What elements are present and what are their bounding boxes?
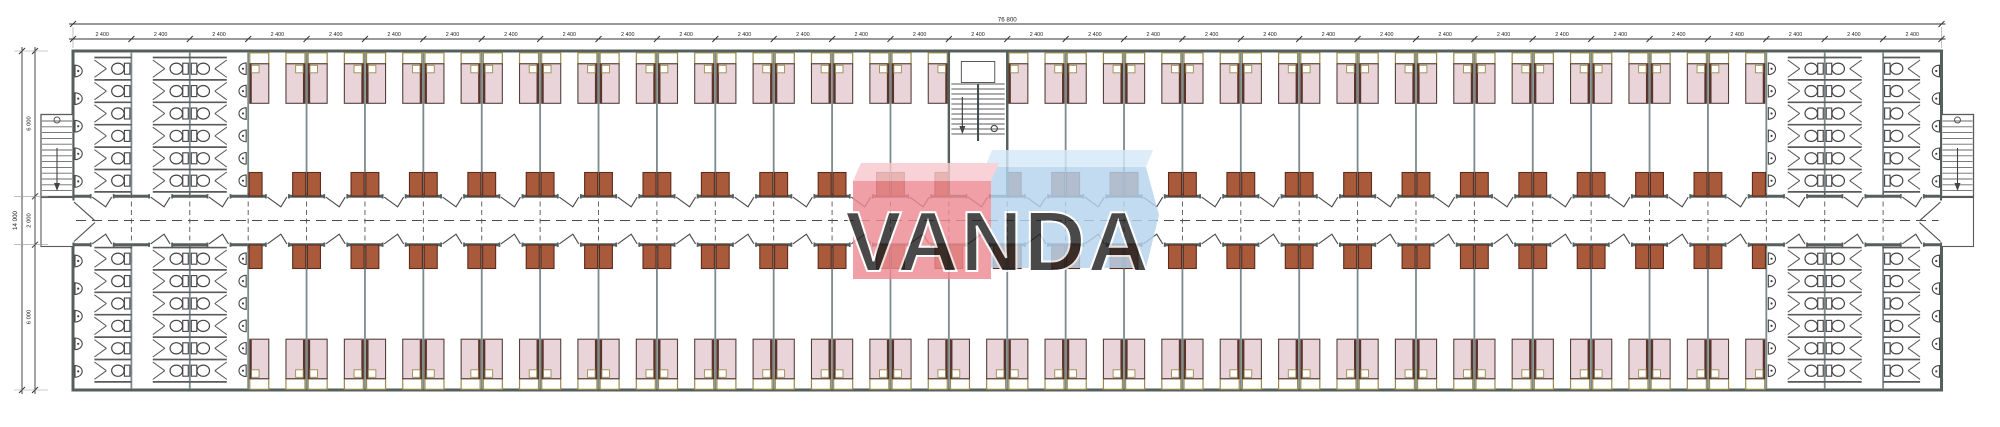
stall-door-swing bbox=[215, 136, 227, 145]
bed-pillow bbox=[310, 65, 318, 73]
door-opening bbox=[1726, 243, 1748, 247]
bed-pillow bbox=[821, 370, 829, 378]
bed-pillow bbox=[471, 65, 479, 73]
sink-drain bbox=[242, 347, 244, 349]
bed-pillow bbox=[1580, 370, 1588, 378]
stall-door-swing bbox=[153, 250, 165, 259]
bed-head bbox=[1009, 379, 1028, 390]
bed-pillow bbox=[1697, 65, 1705, 73]
door-jamb bbox=[1550, 194, 1552, 198]
stall-door-swing bbox=[1908, 60, 1920, 69]
door-swing bbox=[92, 234, 112, 244]
locker bbox=[1709, 245, 1722, 269]
toilet-tank bbox=[1818, 365, 1824, 376]
sink-drain bbox=[77, 260, 79, 262]
sink-drain bbox=[1770, 68, 1772, 70]
locker bbox=[293, 245, 306, 269]
stall-door-swing bbox=[153, 259, 165, 268]
toilet-bowl bbox=[1890, 365, 1902, 376]
locker bbox=[1183, 173, 1196, 197]
toilet-tank bbox=[1885, 153, 1891, 164]
bed-pillow bbox=[1419, 65, 1427, 73]
dimension-segment-label: 6 000 bbox=[27, 310, 33, 325]
sink-drain bbox=[77, 70, 79, 72]
stall-door-swing bbox=[153, 127, 165, 136]
door-opening bbox=[558, 243, 580, 247]
door-jamb bbox=[1164, 243, 1166, 247]
toilet-tank bbox=[1885, 365, 1891, 376]
door-swing bbox=[734, 234, 754, 244]
toilet-bowl bbox=[197, 253, 209, 264]
door-swing bbox=[1610, 197, 1630, 207]
door-leaf bbox=[74, 202, 95, 221]
door-jamb bbox=[1666, 243, 1668, 247]
dimension-module-label: 2 400 bbox=[796, 32, 810, 38]
dimension-module-label: 2 400 bbox=[387, 32, 401, 38]
stall-door-swing bbox=[1850, 181, 1862, 190]
door-jamb bbox=[1725, 243, 1727, 247]
stall-door-swing bbox=[1908, 317, 1920, 326]
door-jamb bbox=[405, 243, 407, 247]
toilet-tank bbox=[191, 108, 197, 119]
toilet-bowl bbox=[1805, 153, 1817, 164]
locker bbox=[1358, 173, 1371, 197]
bed-head bbox=[425, 379, 444, 390]
stall-door-swing bbox=[94, 326, 106, 335]
stall-door-swing bbox=[215, 181, 227, 190]
door-jamb bbox=[674, 194, 676, 198]
bed-pillow bbox=[544, 370, 552, 378]
stall-door-swing bbox=[1788, 295, 1800, 304]
bed-head bbox=[1629, 379, 1648, 390]
toilet-tank bbox=[183, 343, 189, 354]
toilet-bowl bbox=[112, 86, 124, 97]
toilet-bowl bbox=[1832, 343, 1844, 354]
toilet-bowl bbox=[1832, 320, 1844, 331]
door-opening bbox=[325, 194, 347, 198]
stall-door-swing bbox=[1850, 272, 1862, 281]
bed-head bbox=[775, 53, 794, 64]
door-jamb bbox=[1456, 243, 1458, 247]
locker bbox=[1694, 245, 1707, 269]
door-jamb bbox=[790, 243, 792, 247]
toilet-bowl bbox=[1805, 253, 1817, 264]
stall-door-swing bbox=[94, 371, 106, 380]
door-jamb bbox=[288, 243, 290, 247]
door-jamb bbox=[230, 243, 232, 247]
door-opening bbox=[1201, 194, 1223, 198]
stall-door-swing bbox=[153, 114, 165, 123]
stall-door-swing bbox=[1908, 150, 1920, 159]
toilet-bowl bbox=[170, 63, 182, 74]
sink-drain bbox=[1770, 302, 1772, 304]
bed-head bbox=[1220, 379, 1239, 390]
door-jamb bbox=[732, 194, 734, 198]
bed-head bbox=[600, 53, 619, 64]
bed-pillow bbox=[1653, 370, 1661, 378]
stall-door-swing bbox=[1908, 295, 1920, 304]
dimension-module-label: 2 400 bbox=[329, 32, 343, 38]
door-jamb bbox=[323, 243, 325, 247]
toilet-bowl bbox=[170, 153, 182, 164]
door-swing bbox=[734, 197, 754, 207]
door-jamb bbox=[171, 243, 173, 247]
dimension-module-label: 2 400 bbox=[1088, 32, 1102, 38]
stall-door-swing bbox=[153, 304, 165, 313]
bed-head bbox=[811, 53, 830, 64]
stall-door-swing bbox=[94, 181, 106, 190]
locker bbox=[526, 245, 539, 269]
door-opening bbox=[1843, 243, 1865, 247]
door-swing bbox=[1669, 234, 1689, 244]
dimension-module-label: 2 400 bbox=[446, 32, 460, 38]
toilet-tank bbox=[1885, 298, 1891, 309]
door-jamb bbox=[1806, 194, 1808, 198]
locker bbox=[351, 173, 364, 197]
stall-door-swing bbox=[1788, 340, 1800, 349]
bed-head bbox=[753, 53, 772, 64]
bed-pillow bbox=[938, 65, 946, 73]
toilet-bowl bbox=[170, 343, 182, 354]
door-opening bbox=[1201, 243, 1223, 247]
dimension-module-label: 2 400 bbox=[913, 32, 927, 38]
bed-head bbox=[1067, 379, 1086, 390]
locker bbox=[775, 245, 788, 269]
bed-pillow bbox=[938, 370, 946, 378]
bed-pillow bbox=[412, 370, 420, 378]
toilet-bowl bbox=[197, 86, 209, 97]
bed-head bbox=[1534, 53, 1553, 64]
toilet-tank bbox=[183, 365, 189, 376]
bed-head bbox=[1395, 53, 1414, 64]
door-jamb bbox=[522, 194, 524, 198]
toilet-tank bbox=[124, 63, 130, 74]
stall-door-swing bbox=[153, 82, 165, 91]
stall-door-swing bbox=[215, 304, 227, 313]
door-jamb bbox=[382, 194, 384, 198]
toilet-bowl bbox=[112, 298, 124, 309]
stall-door-swing bbox=[1788, 91, 1800, 100]
toilet-tank bbox=[1818, 86, 1824, 97]
bed-pillow bbox=[1478, 65, 1486, 73]
bed-pillow bbox=[1697, 370, 1705, 378]
bed-pillow bbox=[252, 370, 260, 378]
bed-head bbox=[987, 379, 1006, 390]
door-swing bbox=[1377, 234, 1397, 244]
toilet-bowl bbox=[112, 276, 124, 287]
locker bbox=[1344, 245, 1357, 269]
dimension-module-label: 2 400 bbox=[95, 32, 109, 38]
bed-pillow bbox=[1127, 370, 1135, 378]
dimension-module-label: 2 400 bbox=[1030, 32, 1044, 38]
bed-pillow bbox=[777, 65, 785, 73]
dimension-module-label: 2 400 bbox=[971, 32, 985, 38]
locker bbox=[818, 173, 831, 197]
locker bbox=[716, 245, 729, 269]
door-swing bbox=[559, 234, 579, 244]
door-swing bbox=[326, 234, 346, 244]
sink-drain bbox=[1770, 112, 1772, 114]
stall-door-swing bbox=[94, 114, 106, 123]
stall-door-swing bbox=[1908, 272, 1920, 281]
bed-head bbox=[344, 53, 363, 64]
door-jamb bbox=[1339, 194, 1341, 198]
locker bbox=[1709, 173, 1722, 197]
toilet-tank bbox=[1818, 343, 1824, 354]
door-jamb bbox=[1748, 194, 1750, 198]
bed-pillow bbox=[1172, 370, 1180, 378]
sink-drain bbox=[1935, 370, 1937, 372]
door-jamb bbox=[1433, 243, 1435, 247]
door-opening bbox=[1668, 243, 1690, 247]
door-opening bbox=[1434, 243, 1456, 247]
dimension-module-label: 2 400 bbox=[1555, 32, 1569, 38]
door-swing bbox=[501, 234, 521, 244]
door-jamb bbox=[1842, 243, 1844, 247]
stall-door-swing bbox=[94, 105, 106, 114]
stall-door-swing bbox=[215, 348, 227, 357]
bed-head bbox=[578, 53, 597, 64]
stall-door-swing bbox=[153, 362, 165, 371]
door-swing bbox=[501, 197, 521, 207]
door-jamb bbox=[265, 194, 267, 198]
door-opening bbox=[1668, 194, 1690, 198]
stall-door-swing bbox=[1908, 105, 1920, 114]
stall-door-swing bbox=[215, 114, 227, 123]
bed-head bbox=[1629, 53, 1648, 64]
bed-pillow bbox=[1186, 370, 1194, 378]
stall-door-swing bbox=[153, 326, 165, 335]
toilet-tank bbox=[1885, 175, 1891, 186]
door-swing bbox=[443, 197, 463, 207]
locker bbox=[526, 173, 539, 197]
stall-door-swing bbox=[153, 60, 165, 69]
door-opening bbox=[1551, 243, 1573, 247]
bed-pillow bbox=[763, 65, 771, 73]
bed-head bbox=[870, 379, 889, 390]
bed-pillow bbox=[704, 370, 712, 378]
toilet-bowl bbox=[197, 130, 209, 141]
door-jamb bbox=[755, 194, 757, 198]
stall-door-swing bbox=[1850, 362, 1862, 371]
toilet-bowl bbox=[170, 298, 182, 309]
door-swing bbox=[1260, 234, 1280, 244]
locker bbox=[1300, 245, 1313, 269]
door-swing bbox=[1318, 197, 1338, 207]
locker bbox=[307, 173, 320, 197]
bed-head bbox=[1512, 379, 1531, 390]
bed-head bbox=[753, 379, 772, 390]
dimension-module-label: 2 400 bbox=[1497, 32, 1511, 38]
floor-plan: 76 8002 4002 4002 4002 4002 4002 4002 40… bbox=[0, 0, 2000, 427]
locker bbox=[1650, 245, 1663, 269]
door-jamb bbox=[1573, 194, 1575, 198]
bed-head bbox=[1534, 379, 1553, 390]
locker bbox=[1460, 245, 1473, 269]
door-opening bbox=[1376, 194, 1398, 198]
stall-door-swing bbox=[94, 60, 106, 69]
door-opening bbox=[383, 243, 405, 247]
toilet-bowl bbox=[197, 365, 209, 376]
watermark: VANDA bbox=[845, 150, 1159, 290]
bed-pillow bbox=[471, 370, 479, 378]
stall-door-swing bbox=[1788, 158, 1800, 167]
toilet-tank bbox=[1826, 343, 1832, 354]
door-jamb bbox=[499, 243, 501, 247]
door-jamb bbox=[288, 194, 290, 198]
bed-head bbox=[1279, 53, 1298, 64]
door-opening bbox=[675, 194, 697, 198]
toilet-tank bbox=[1826, 320, 1832, 331]
stall-door-swing bbox=[153, 295, 165, 304]
door-opening bbox=[1551, 194, 1573, 198]
sink-drain bbox=[242, 157, 244, 159]
stall-door-swing bbox=[1788, 348, 1800, 357]
bed-pillow bbox=[1347, 65, 1355, 73]
toilet-bowl bbox=[1805, 298, 1817, 309]
bed-pillow bbox=[1113, 65, 1121, 73]
toilet-bowl bbox=[1805, 108, 1817, 119]
locker bbox=[1242, 245, 1255, 269]
toilet-bowl bbox=[1890, 130, 1902, 141]
toilet-tank bbox=[1826, 130, 1832, 141]
door-swing bbox=[618, 197, 638, 207]
stall-door-swing bbox=[1850, 250, 1862, 259]
bed-head bbox=[542, 379, 561, 390]
door-opening bbox=[675, 243, 697, 247]
door-jamb bbox=[615, 194, 617, 198]
stall-door-swing bbox=[153, 317, 165, 326]
bed-pillow bbox=[544, 65, 552, 73]
bed-pillow bbox=[777, 370, 785, 378]
floor-plan-page: 76 8002 4002 4002 4002 4002 4002 4002 40… bbox=[0, 0, 2000, 427]
bed-pillow bbox=[704, 65, 712, 73]
toilet-tank bbox=[191, 276, 197, 287]
stall-door-swing bbox=[215, 317, 227, 326]
door-jamb bbox=[1491, 194, 1493, 198]
bed-pillow bbox=[1011, 370, 1019, 378]
toilet-bowl bbox=[170, 253, 182, 264]
door-jamb bbox=[1222, 194, 1224, 198]
locker bbox=[366, 245, 379, 269]
locker bbox=[833, 173, 846, 197]
locker bbox=[1752, 173, 1765, 197]
dimension-module-label: 2 400 bbox=[679, 32, 693, 38]
toilet-tank bbox=[1885, 343, 1891, 354]
stall-door-swing bbox=[153, 158, 165, 167]
bed-head bbox=[1045, 379, 1064, 390]
door-jamb bbox=[113, 243, 115, 247]
locker bbox=[760, 245, 773, 269]
sink-drain bbox=[77, 125, 79, 127]
stall-door-swing bbox=[153, 281, 165, 290]
bed-pillow bbox=[1113, 370, 1121, 378]
stall-door-swing bbox=[94, 362, 106, 371]
dimension-module-label: 2 400 bbox=[1906, 32, 1920, 38]
bed-head bbox=[892, 53, 911, 64]
toilet-bowl bbox=[1805, 63, 1817, 74]
sink-drain bbox=[242, 90, 244, 92]
locker bbox=[658, 245, 671, 269]
bed-pillow bbox=[1639, 370, 1647, 378]
sink-drain bbox=[1935, 343, 1937, 345]
bed-pillow bbox=[1244, 370, 1252, 378]
stall-door-swing bbox=[153, 91, 165, 100]
stall-door-swing bbox=[94, 127, 106, 136]
door-swing bbox=[1727, 197, 1747, 207]
door-opening bbox=[1376, 243, 1398, 247]
sink-drain bbox=[77, 98, 79, 100]
sink-drain bbox=[242, 325, 244, 327]
locker bbox=[1475, 173, 1488, 197]
door-swing bbox=[384, 234, 404, 244]
bed-pillow bbox=[1288, 370, 1296, 378]
bed-pillow bbox=[602, 370, 610, 378]
stall-door-swing bbox=[1908, 82, 1920, 91]
door-jamb bbox=[171, 194, 173, 198]
door-jamb bbox=[1900, 243, 1902, 247]
stall-door-swing bbox=[215, 127, 227, 136]
dimension-module-label: 2 400 bbox=[271, 32, 285, 38]
stall-door-swing bbox=[1788, 127, 1800, 136]
toilet-tank bbox=[1818, 298, 1824, 309]
stall-door-swing bbox=[94, 69, 106, 78]
door-swing bbox=[1844, 234, 1864, 244]
door-opening bbox=[266, 243, 288, 247]
toilet-bowl bbox=[197, 108, 209, 119]
toilet-tank bbox=[191, 343, 197, 354]
bed-head bbox=[1359, 379, 1378, 390]
bed-pillow bbox=[996, 370, 1004, 378]
stall-door-swing bbox=[1788, 272, 1800, 281]
toilet-bowl bbox=[197, 276, 209, 287]
dimension-module-label: 2 400 bbox=[1380, 32, 1394, 38]
toilet-tank bbox=[124, 343, 130, 354]
bed-head bbox=[1512, 53, 1531, 64]
toilet-tank bbox=[191, 63, 197, 74]
door-opening bbox=[733, 243, 755, 247]
bed-pillow bbox=[835, 65, 843, 73]
door-swing bbox=[267, 234, 287, 244]
toilet-bowl bbox=[1832, 86, 1844, 97]
bed-head bbox=[1162, 379, 1181, 390]
door-opening bbox=[1609, 194, 1631, 198]
door-jamb bbox=[813, 243, 815, 247]
stall-door-swing bbox=[1788, 136, 1800, 145]
door-jamb bbox=[1339, 243, 1341, 247]
toilet-bowl bbox=[197, 298, 209, 309]
bed-head bbox=[1242, 53, 1261, 64]
stall-door-swing bbox=[1908, 304, 1920, 313]
bed-pillow bbox=[412, 65, 420, 73]
bed-pillow bbox=[835, 370, 843, 378]
door-swing bbox=[267, 197, 287, 207]
locker bbox=[1475, 245, 1488, 269]
toilet-tank bbox=[1826, 86, 1832, 97]
bed-head bbox=[659, 53, 678, 64]
stall-door-swing bbox=[1908, 281, 1920, 290]
door-jamb bbox=[1550, 243, 1552, 247]
bed-head bbox=[1301, 379, 1320, 390]
sink-drain bbox=[1770, 90, 1772, 92]
toilet-bowl bbox=[1890, 276, 1902, 287]
toilet-bowl bbox=[1832, 276, 1844, 287]
dimension-module-label: 2 400 bbox=[1205, 32, 1219, 38]
stall-door-swing bbox=[215, 340, 227, 349]
sink-drain bbox=[77, 153, 79, 155]
locker bbox=[818, 245, 831, 269]
stall-door-swing bbox=[1908, 250, 1920, 259]
